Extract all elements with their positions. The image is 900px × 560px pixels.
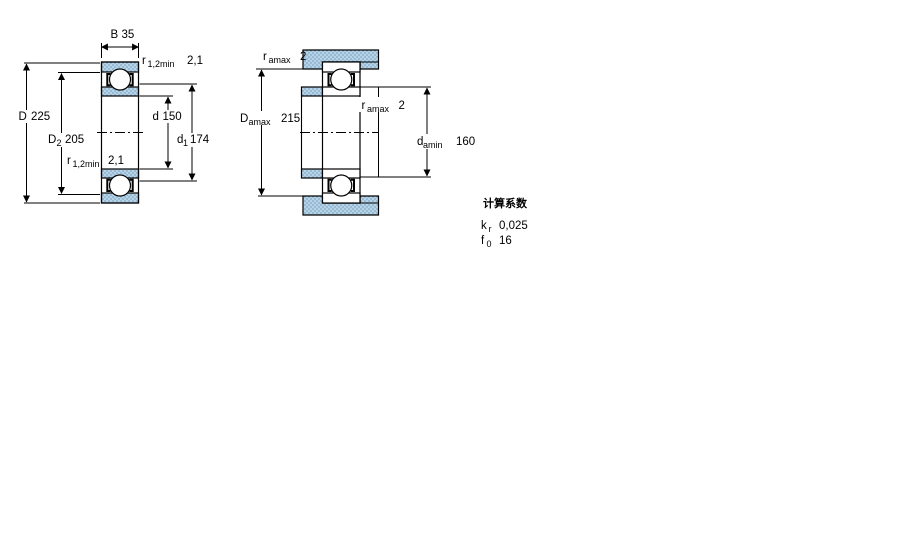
calculation-factors-heading: 计算系数 [483, 196, 528, 210]
dim-d-value: 150 [163, 111, 182, 123]
dim-ra-shaft: r amax 2 [359, 87, 407, 177]
dim-d1-value: 174 [190, 134, 210, 146]
shaft-shoulder-bottom [302, 169, 323, 178]
right-mounting-figure: r amax 2 D amax 215 r amax 2 d [237, 50, 480, 215]
dim-Damax-subscript: amax [249, 117, 272, 127]
dim-d: d 150 [140, 96, 182, 169]
dim-Damax: D amax 215 [237, 70, 303, 196]
dim-d1: d 1 174 [140, 84, 216, 181]
calc-f0-symbol: f [481, 235, 485, 247]
dim-r-bottom: r 1,2min 2,1 [64, 154, 124, 169]
dim-D-symbol: D [19, 111, 27, 123]
bearing-drawing: B 35 D 225 D 2 205 d [0, 0, 900, 560]
dim-ra-shaft-value: 2 [399, 100, 405, 112]
dim-damin-subscript: amin [423, 140, 443, 150]
dim-r-bottom-symbol: r [67, 155, 71, 167]
dim-ra-housing-subscript: amax [269, 55, 292, 65]
calculation-factors: 计算系数 k r 0,025 f 0 16 [481, 196, 528, 249]
dim-ra-housing-symbol: r [263, 51, 267, 63]
mounted-ball-bottom [331, 175, 352, 196]
dim-B-symbol: B [111, 29, 119, 41]
dim-r-top-subscript: 1,2min [148, 59, 175, 69]
calc-kr-symbol: k [481, 220, 487, 232]
dim-D-value: 225 [31, 111, 50, 123]
dim-ra-housing: r amax 2 [256, 51, 306, 69]
calc-kr-value: 0,025 [499, 220, 528, 232]
dim-Damax-symbol: D [240, 113, 248, 125]
dim-D2-subscript: 2 [57, 138, 62, 148]
dim-damin-value: 160 [456, 136, 475, 148]
calc-f0-subscript: 0 [487, 239, 492, 249]
dim-d1-subscript: 1 [183, 138, 188, 148]
dim-ra-shaft-subscript: amax [367, 104, 390, 114]
shaft-shoulder-top [302, 87, 323, 96]
dim-B: B 35 [102, 29, 139, 58]
calc-f0-value: 16 [499, 235, 512, 247]
dim-r-top-symbol: r [142, 55, 146, 67]
dim-ra-shaft-symbol: r [362, 100, 366, 112]
calc-row-kr: k r 0,025 [481, 220, 528, 234]
calc-kr-subscript: r [489, 224, 492, 234]
dim-d-symbol: d [153, 111, 159, 123]
dim-Damax-value: 215 [281, 113, 300, 125]
dim-D2-symbol: D [48, 134, 56, 146]
ball-bottom [110, 175, 131, 196]
dim-r-top-value: 2,1 [187, 55, 203, 67]
dim-r-top: r 1,2min 2,1 [142, 55, 203, 69]
left-bearing-figure: B 35 D 225 D 2 205 d [16, 29, 215, 203]
drawing-canvas: B 35 D 225 D 2 205 d [0, 0, 900, 560]
calc-row-f0: f 0 16 [481, 235, 512, 249]
dim-D2: D 2 205 [45, 73, 100, 195]
dim-r-bottom-subscript: 1,2min [73, 159, 100, 169]
dim-ra-housing-value: 2 [300, 51, 306, 63]
mounted-ball-top [331, 69, 352, 90]
dim-D2-value: 205 [65, 134, 84, 146]
ball-top [110, 69, 131, 90]
dim-r-bottom-value: 2,1 [108, 155, 124, 167]
dim-B-value: 35 [122, 29, 135, 41]
